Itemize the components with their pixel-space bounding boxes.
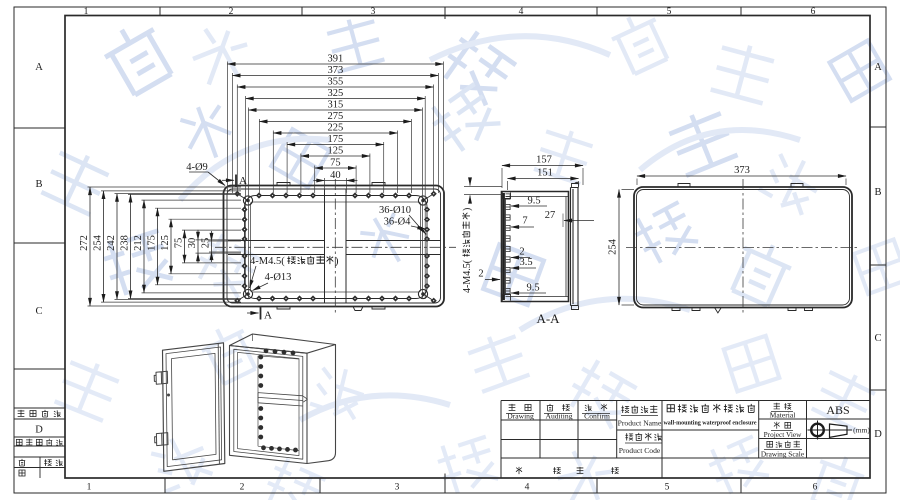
svg-text:A: A xyxy=(264,310,272,322)
svg-text:(mm): (mm) xyxy=(853,426,870,435)
svg-text:212: 212 xyxy=(133,235,144,251)
svg-text:D: D xyxy=(874,429,882,440)
svg-text:391: 391 xyxy=(328,53,344,64)
svg-text:125: 125 xyxy=(328,145,344,156)
svg-text:3.5: 3.5 xyxy=(519,257,532,268)
svg-text:325: 325 xyxy=(328,88,344,99)
svg-text:Product Name: Product Name xyxy=(618,419,662,428)
svg-text:A: A xyxy=(239,175,247,187)
svg-text:): ) xyxy=(335,256,339,267)
svg-text:254: 254 xyxy=(93,234,104,251)
svg-text:): ) xyxy=(462,208,473,211)
svg-text:5: 5 xyxy=(665,483,670,493)
svg-text:36-Ø4: 36-Ø4 xyxy=(384,217,412,228)
svg-text:Confirm: Confirm xyxy=(584,412,610,421)
svg-text:ABS: ABS xyxy=(826,403,849,417)
svg-text:3: 3 xyxy=(371,7,376,17)
svg-text:4-M4.5(: 4-M4.5( xyxy=(250,256,285,267)
svg-text:2: 2 xyxy=(519,247,524,258)
svg-text:9.5: 9.5 xyxy=(526,283,539,294)
svg-text:Drawing Scale: Drawing Scale xyxy=(761,450,804,459)
svg-text:6: 6 xyxy=(813,483,818,493)
svg-text:272: 272 xyxy=(79,235,90,251)
svg-text:A-A: A-A xyxy=(536,311,560,326)
svg-text:2: 2 xyxy=(478,269,483,280)
svg-text:254: 254 xyxy=(608,238,619,255)
svg-text:1: 1 xyxy=(84,7,89,17)
svg-text:25: 25 xyxy=(201,238,212,249)
svg-text:4-Ø13: 4-Ø13 xyxy=(265,272,292,283)
svg-text:175: 175 xyxy=(147,235,158,251)
svg-text:7: 7 xyxy=(522,216,527,227)
svg-text:40: 40 xyxy=(330,170,341,181)
svg-text:4: 4 xyxy=(525,483,530,493)
svg-text:36-Ø10: 36-Ø10 xyxy=(379,205,411,216)
svg-text:151: 151 xyxy=(537,168,553,179)
svg-text:2: 2 xyxy=(240,483,245,493)
svg-text:242: 242 xyxy=(106,235,117,251)
svg-text:5: 5 xyxy=(667,7,672,17)
svg-text:Auditing: Auditing xyxy=(545,412,572,421)
svg-text:Material: Material xyxy=(770,411,796,420)
svg-text:4: 4 xyxy=(519,7,524,17)
svg-text:A: A xyxy=(874,62,882,73)
svg-text:Product Code: Product Code xyxy=(619,446,661,455)
svg-text:75: 75 xyxy=(330,157,341,168)
svg-text:4-Ø9: 4-Ø9 xyxy=(186,162,208,173)
svg-text:355: 355 xyxy=(328,76,344,87)
svg-text:27: 27 xyxy=(545,210,556,221)
svg-text:B: B xyxy=(874,187,881,198)
svg-text:225: 225 xyxy=(328,122,344,133)
svg-text:B: B xyxy=(35,179,42,190)
svg-text:A: A xyxy=(35,62,43,73)
svg-text:238: 238 xyxy=(120,235,131,251)
svg-text:Project View: Project View xyxy=(764,430,802,439)
svg-text:275: 275 xyxy=(328,111,344,122)
svg-text:75: 75 xyxy=(174,238,185,249)
svg-text:C: C xyxy=(35,306,42,317)
svg-text:125: 125 xyxy=(160,235,171,251)
svg-text:30: 30 xyxy=(187,238,198,249)
svg-text:Drawing: Drawing xyxy=(507,412,534,421)
svg-text:wall-mounting waterproof enclo: wall-mounting waterproof enclosure xyxy=(663,421,756,427)
svg-text:175: 175 xyxy=(328,134,344,145)
svg-text:1: 1 xyxy=(87,483,92,493)
svg-text:2: 2 xyxy=(229,7,234,17)
svg-text:4-M4.5(: 4-M4.5( xyxy=(462,259,473,293)
svg-text:315: 315 xyxy=(328,99,344,110)
svg-text:3: 3 xyxy=(395,483,400,493)
svg-text:6: 6 xyxy=(811,7,816,17)
svg-text:D: D xyxy=(35,425,43,436)
svg-text:157: 157 xyxy=(536,155,552,166)
svg-text:373: 373 xyxy=(734,165,750,176)
svg-text:C: C xyxy=(874,333,881,344)
svg-text:373: 373 xyxy=(328,65,344,76)
svg-text:9.5: 9.5 xyxy=(527,196,540,207)
